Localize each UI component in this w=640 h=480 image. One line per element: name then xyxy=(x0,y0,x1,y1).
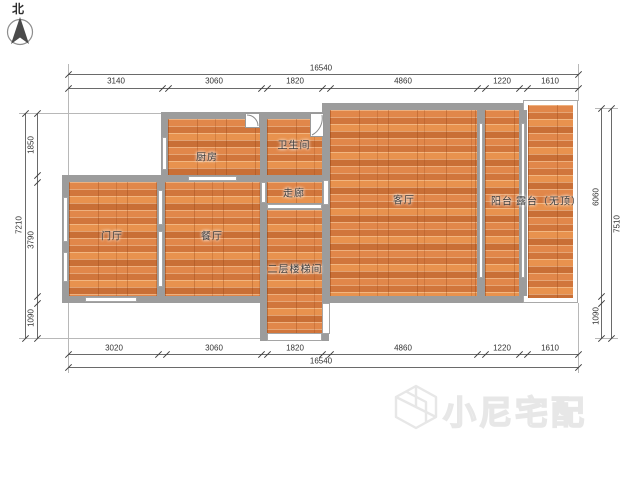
room-label-corridor: 走廊 xyxy=(283,185,305,200)
wall-bottom-right xyxy=(322,296,523,303)
door-swing-bathroom-icon xyxy=(310,113,324,137)
window-living-balcony xyxy=(479,123,483,278)
dim-bottom-3: 1820 xyxy=(286,344,304,353)
dim-left-total: 7210 xyxy=(15,216,24,234)
ext-line xyxy=(578,303,579,373)
window-foyer-left-2 xyxy=(63,252,68,282)
room-label-stairwell: 二层楼梯间 xyxy=(268,261,323,276)
room-label-kitchen: 厨房 xyxy=(196,149,218,164)
opening-corridor-left xyxy=(261,182,266,203)
opening-corridor-living xyxy=(323,180,329,205)
watermark-cube-logo-icon xyxy=(392,383,440,431)
dim-top-2: 3060 xyxy=(205,77,223,86)
dim-top-3: 1820 xyxy=(286,77,304,86)
room-label-living: 客厅 xyxy=(393,192,415,207)
wall-stairwell-corner-r xyxy=(322,333,329,341)
dim-right-total: 7510 xyxy=(613,215,622,233)
opening-foyer-dining-2 xyxy=(158,231,163,287)
window-kitchen-left xyxy=(162,137,167,170)
room-label-foyer: 门厅 xyxy=(101,228,123,243)
ext-line xyxy=(68,64,69,95)
dim-top-5: 1220 xyxy=(493,77,511,86)
ext-line xyxy=(578,94,579,101)
dim-bottom-4: 4860 xyxy=(394,344,412,353)
floor-plan: 北 厨房 卫生间 xyxy=(0,0,640,480)
dim-top-4: 4860 xyxy=(394,77,412,86)
dim-bottom-5: 1220 xyxy=(493,344,511,353)
opening-corridor-stairs xyxy=(267,204,322,209)
wall-stairwell-corner-l xyxy=(260,333,267,341)
dim-left-2: 3790 xyxy=(27,231,36,249)
room-label-terrace: 露台（无顶） xyxy=(516,193,582,208)
window-stairwell-right xyxy=(322,303,330,334)
dim-line-bottom-total xyxy=(68,367,578,368)
ext-line xyxy=(578,64,579,95)
window-foyer-left-1 xyxy=(63,197,68,242)
dim-bottom-2: 3060 xyxy=(205,344,223,353)
window-foyer-bottom xyxy=(85,297,137,302)
wall-living-top xyxy=(322,103,523,110)
ext-line xyxy=(595,338,618,339)
room-label-bathroom: 卫生间 xyxy=(278,137,311,152)
ext-line xyxy=(45,338,260,339)
dim-left-1: 1850 xyxy=(27,136,36,154)
dim-left-3: 1090 xyxy=(27,309,36,327)
dim-line-top-total xyxy=(68,74,578,75)
ext-line xyxy=(595,108,618,109)
dim-bottom-1: 3020 xyxy=(105,344,123,353)
dim-right-1: 6060 xyxy=(592,188,601,206)
dim-bottom-6: 1610 xyxy=(541,344,559,353)
dim-bottom-total: 16540 xyxy=(310,357,332,366)
north-arrow-icon xyxy=(4,13,36,49)
dim-top-6: 1610 xyxy=(541,77,559,86)
dim-right-2: 1090 xyxy=(592,307,601,325)
window-stairwell-bottom xyxy=(267,333,322,341)
ext-line xyxy=(68,95,69,175)
opening-kitchen-dining xyxy=(188,176,237,181)
wall-kitchen-bathroom xyxy=(260,112,267,175)
ext-line xyxy=(45,113,161,114)
room-label-dining: 餐厅 xyxy=(201,228,223,243)
room-label-balcony: 阳台 xyxy=(491,193,513,208)
opening-foyer-dining-1 xyxy=(158,190,163,225)
dim-top-total: 16540 xyxy=(310,64,332,73)
dim-top-1: 3140 xyxy=(107,77,125,86)
watermark-text: 小尼宅配 xyxy=(443,386,587,434)
door-swing-kitchen-icon xyxy=(245,113,260,128)
